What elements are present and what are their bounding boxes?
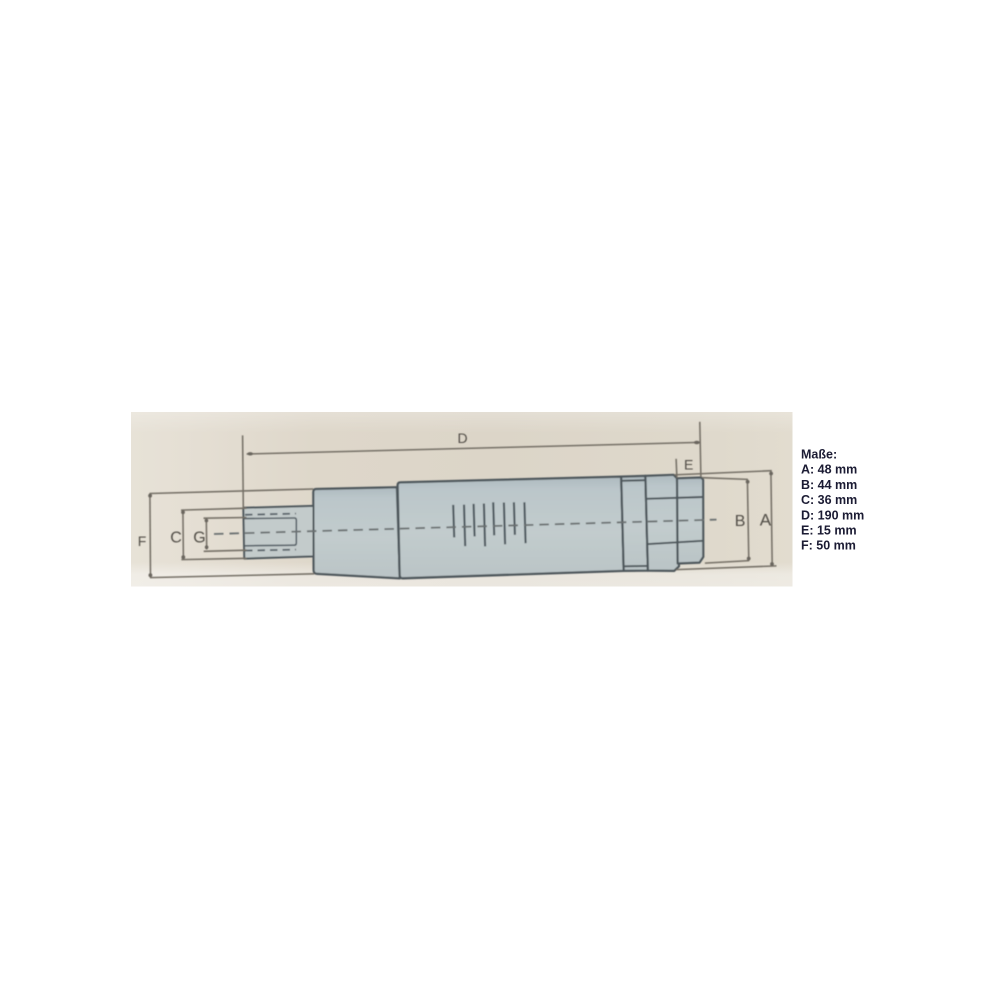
svg-text:C: C bbox=[170, 529, 182, 546]
svg-text:F: F bbox=[138, 533, 147, 549]
svg-text:G: G bbox=[193, 530, 205, 547]
svg-text:D: 190 mm: D: 190 mm bbox=[801, 508, 864, 522]
svg-text:D: D bbox=[458, 430, 468, 446]
svg-text:B: 44 mm: B: 44 mm bbox=[801, 478, 857, 492]
svg-text:F: 50 mm: F: 50 mm bbox=[801, 539, 856, 553]
svg-text:B: B bbox=[735, 513, 746, 530]
svg-text:C: 36 mm: C: 36 mm bbox=[801, 493, 857, 507]
svg-text:E: E bbox=[684, 456, 693, 472]
svg-text:A: A bbox=[760, 511, 772, 530]
svg-text:Maße:: Maße: bbox=[801, 448, 837, 462]
svg-text:E: 15 mm: E: 15 mm bbox=[801, 524, 857, 538]
svg-text:A: 48 mm: A: 48 mm bbox=[801, 463, 857, 477]
